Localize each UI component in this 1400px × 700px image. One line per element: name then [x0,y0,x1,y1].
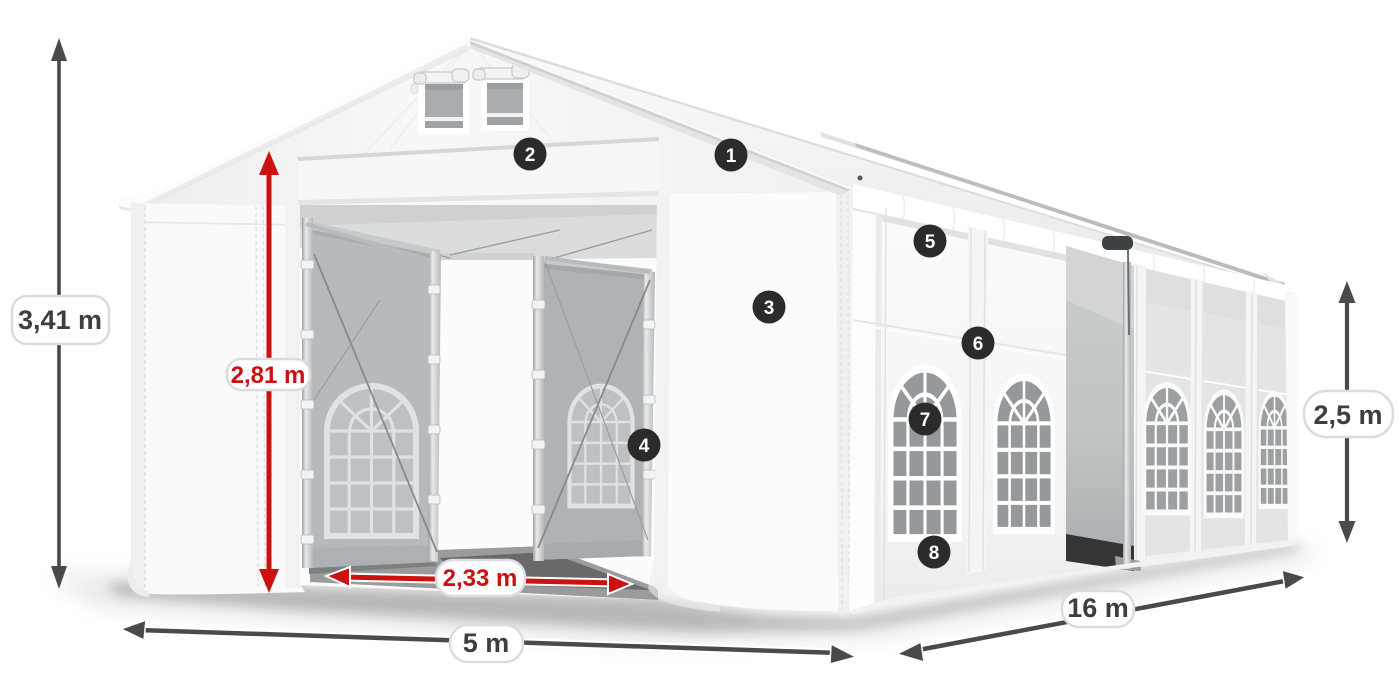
svg-text:1: 1 [726,146,737,167]
svg-text:5 m: 5 m [463,628,510,658]
svg-text:2: 2 [525,145,536,166]
svg-text:6: 6 [973,334,984,355]
svg-text:2,5 m: 2,5 m [1313,400,1382,430]
svg-text:5: 5 [925,232,936,253]
svg-text:2,81 m: 2,81 m [231,362,306,389]
svg-text:8: 8 [929,543,940,564]
svg-text:3,41 m: 3,41 m [18,305,102,335]
svg-text:4: 4 [639,436,650,457]
svg-text:2,33 m: 2,33 m [443,565,518,592]
svg-text:7: 7 [920,410,931,431]
svg-text:3: 3 [764,298,775,319]
svg-text:16 m: 16 m [1067,593,1129,623]
